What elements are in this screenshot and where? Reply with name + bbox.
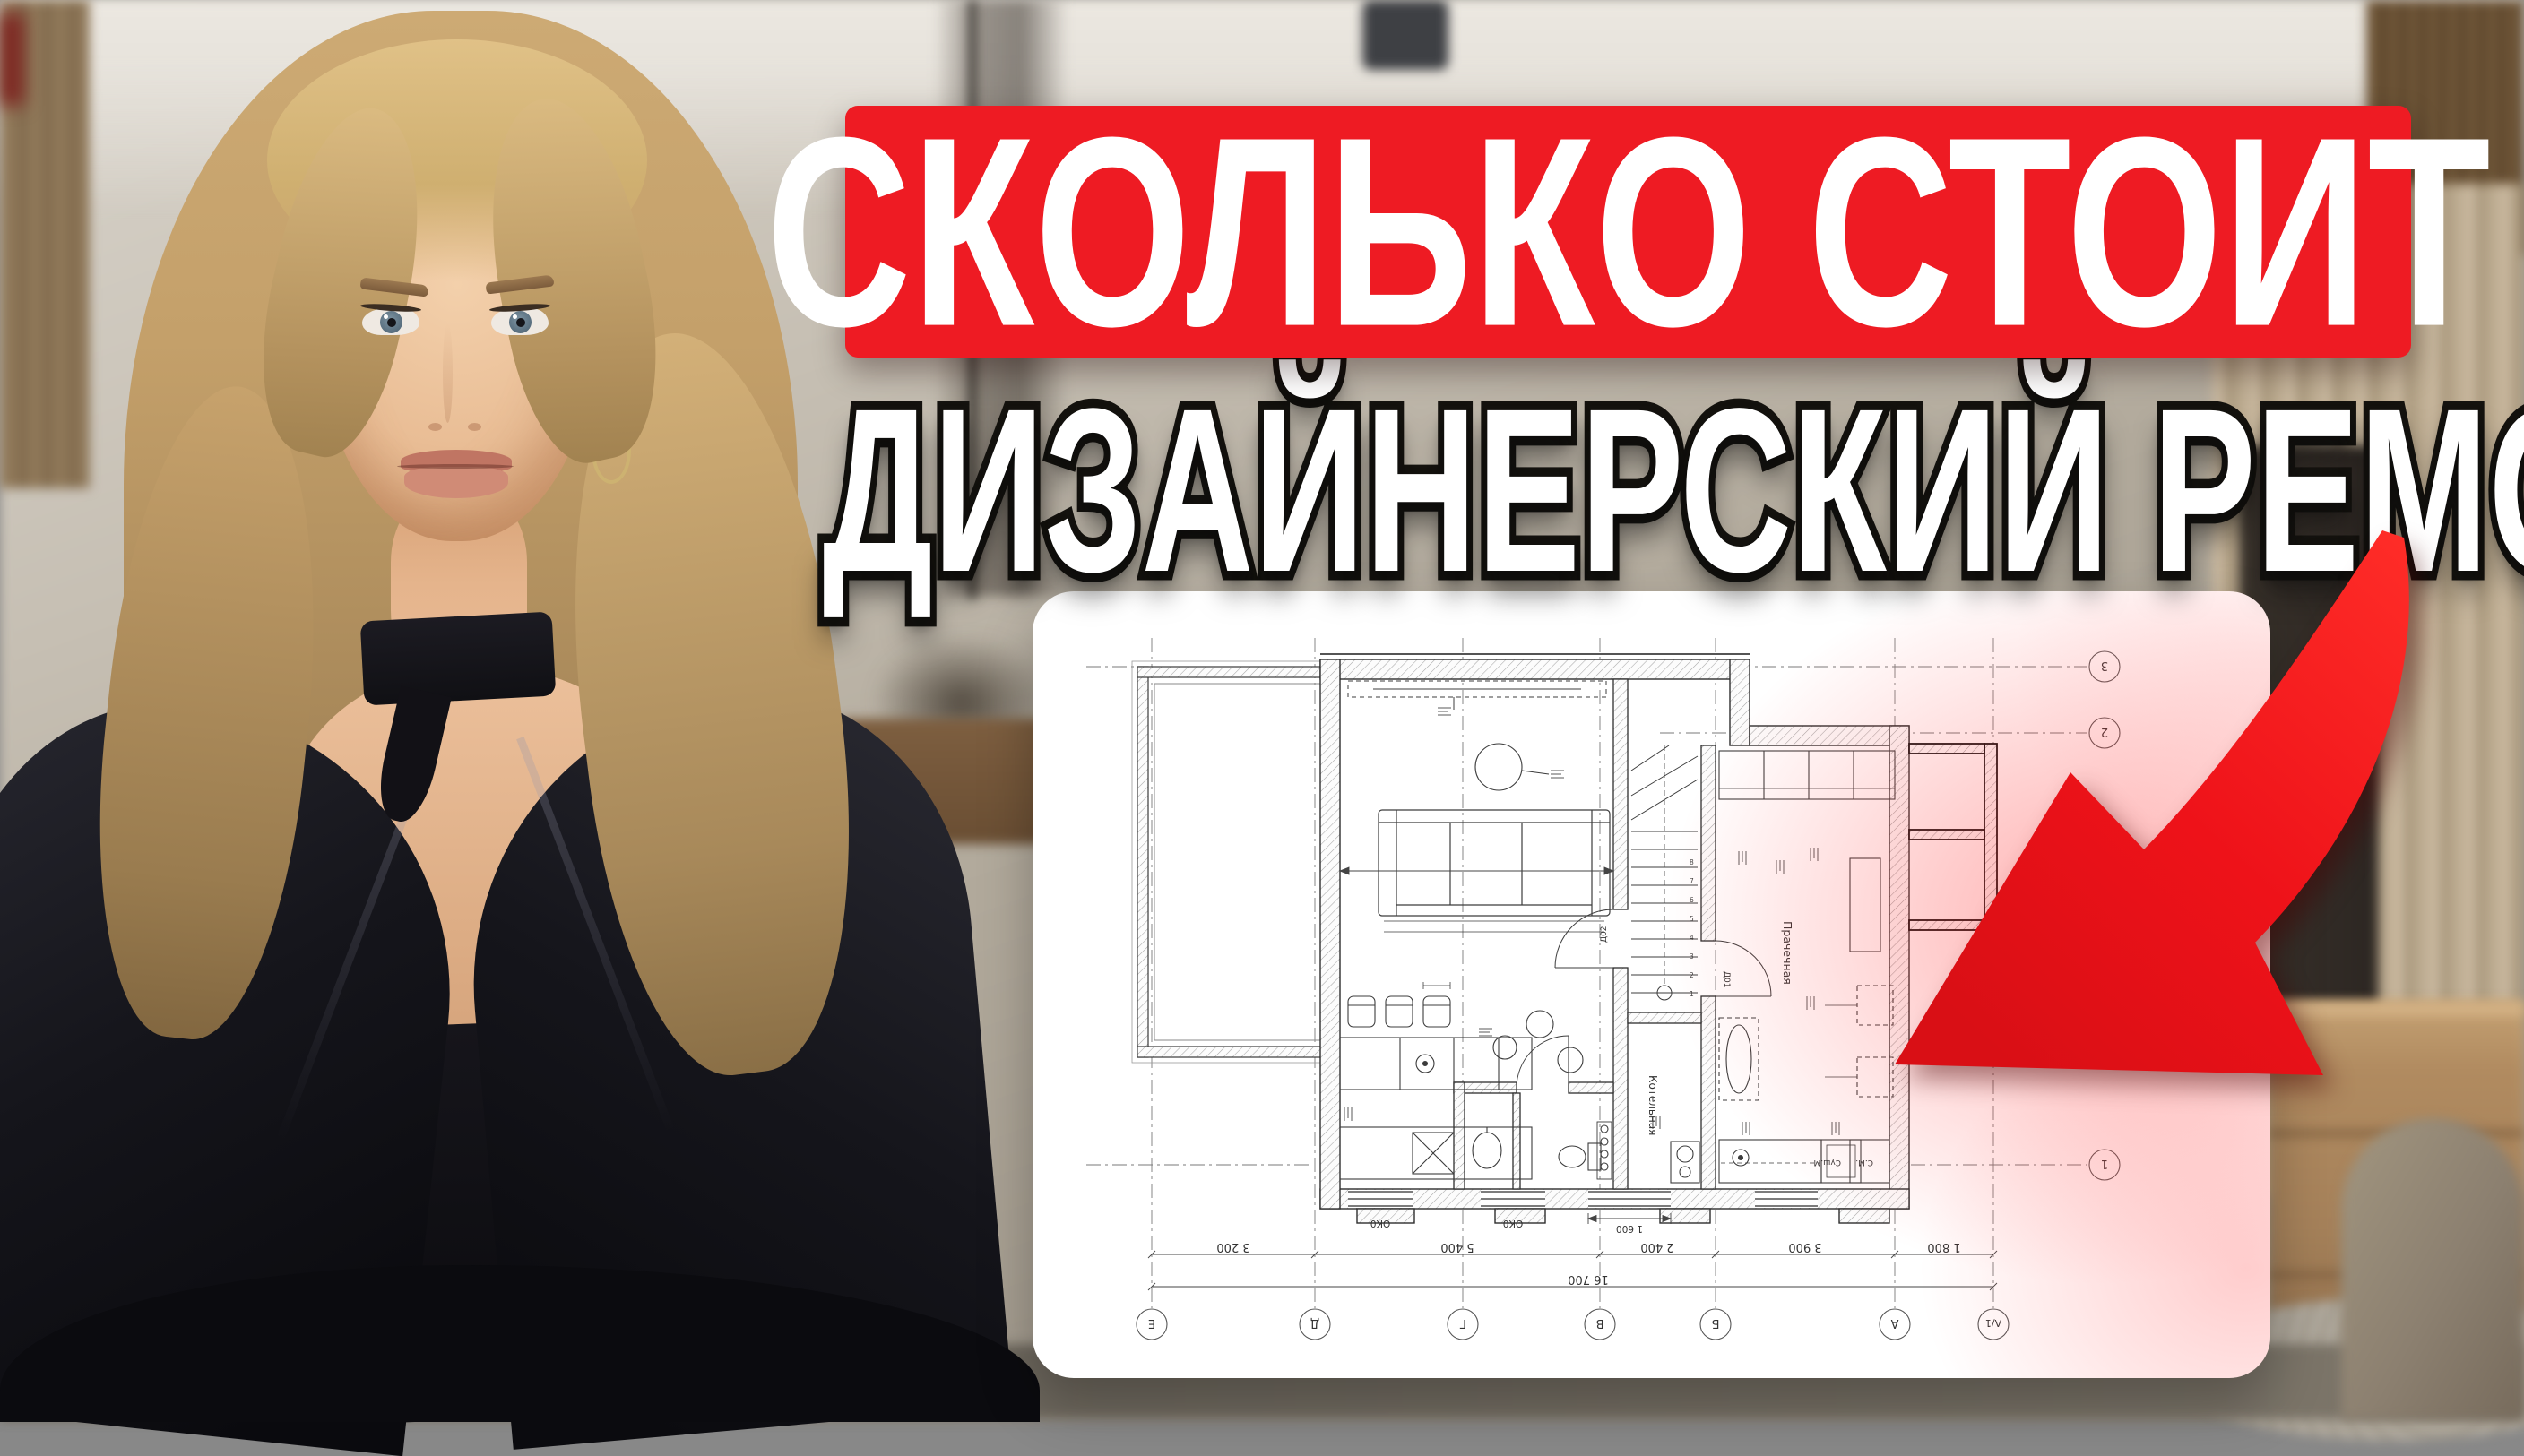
black-choker: [360, 611, 557, 705]
window-tag-1: ОК0: [1370, 1218, 1390, 1228]
bathroom: [1473, 1036, 1612, 1179]
poufs: [1493, 1011, 1583, 1073]
staircase: [1631, 745, 1698, 1000]
headline-banner: СКОЛЬКО СТОИТ: [845, 106, 2411, 358]
eye: [362, 308, 419, 335]
tv-unit: [1348, 681, 1606, 710]
lips: [404, 467, 508, 498]
svg-text:2: 2: [1690, 971, 1694, 979]
axis-g: Г: [1459, 1316, 1466, 1330]
lip-line: [397, 464, 514, 469]
nose: [443, 323, 453, 423]
kitchen: [1340, 982, 1532, 1179]
dim-seg-1: 3 200: [1216, 1240, 1249, 1254]
svg-text:1: 1: [1690, 990, 1694, 998]
door-tag-d2: Д02: [1600, 926, 1609, 943]
window-dim: 1 600: [1616, 1223, 1643, 1234]
headline-line1-text: СКОЛЬКО СТОИТ: [765, 76, 2490, 386]
dim-seg-3: 2 400: [1640, 1240, 1673, 1254]
doors: [1555, 909, 1771, 996]
axis-e: Е: [1148, 1316, 1155, 1330]
svg-text:5: 5: [1690, 915, 1694, 923]
table-annotation: [1551, 771, 1564, 778]
sofa-dimension-line: [1340, 866, 1613, 876]
round-table: [1475, 744, 1549, 790]
door-tag-d1: Д01: [1722, 971, 1731, 987]
laundry-annotation: [1739, 851, 1746, 865]
axis-d: Д: [1310, 1316, 1319, 1330]
svg-text:4: 4: [1690, 934, 1694, 942]
axis-bubbles-bottom: [1137, 1309, 2009, 1340]
stair-step-numbers: 12345678: [1690, 858, 1694, 998]
room-label-boiler: Котельная: [1647, 1075, 1659, 1135]
terrace: [1132, 661, 1336, 1063]
dim-seg-5: 1 800: [1927, 1240, 1960, 1254]
pouf-annotation: [1479, 1029, 1492, 1036]
svg-text:8: 8: [1690, 858, 1694, 866]
axis-v: В: [1596, 1316, 1604, 1330]
axis-a1: А/1: [1985, 1317, 2001, 1329]
svg-text:6: 6: [1690, 896, 1694, 904]
svg-text:3: 3: [1690, 952, 1694, 961]
red-arrow: [1748, 385, 2524, 1165]
window-tag-2: ОК0: [1503, 1218, 1523, 1228]
window-dim-bracket: [1588, 1213, 1671, 1224]
dimension-row-1: [1148, 1251, 1997, 1258]
red-decor-left: [0, 13, 23, 106]
dim-total: 16 700: [1568, 1272, 1609, 1286]
red-arrow-shape: [1895, 530, 2409, 1075]
nostril: [428, 423, 442, 431]
interior-walls: [1454, 679, 1716, 1189]
kitchen-annotation: [1344, 1107, 1352, 1121]
nostril: [468, 423, 481, 431]
boiler: [1671, 1142, 1699, 1183]
dim-seg-2: 5 400: [1440, 1240, 1474, 1254]
ceiling-speaker: [1362, 0, 1448, 70]
axis-a: А: [1890, 1316, 1898, 1330]
dim-seg-4: 3 900: [1788, 1240, 1821, 1254]
axis-b: Б: [1712, 1316, 1720, 1330]
eye: [491, 308, 549, 335]
tv-annotation: [1438, 708, 1451, 715]
svg-text:7: 7: [1690, 877, 1694, 885]
